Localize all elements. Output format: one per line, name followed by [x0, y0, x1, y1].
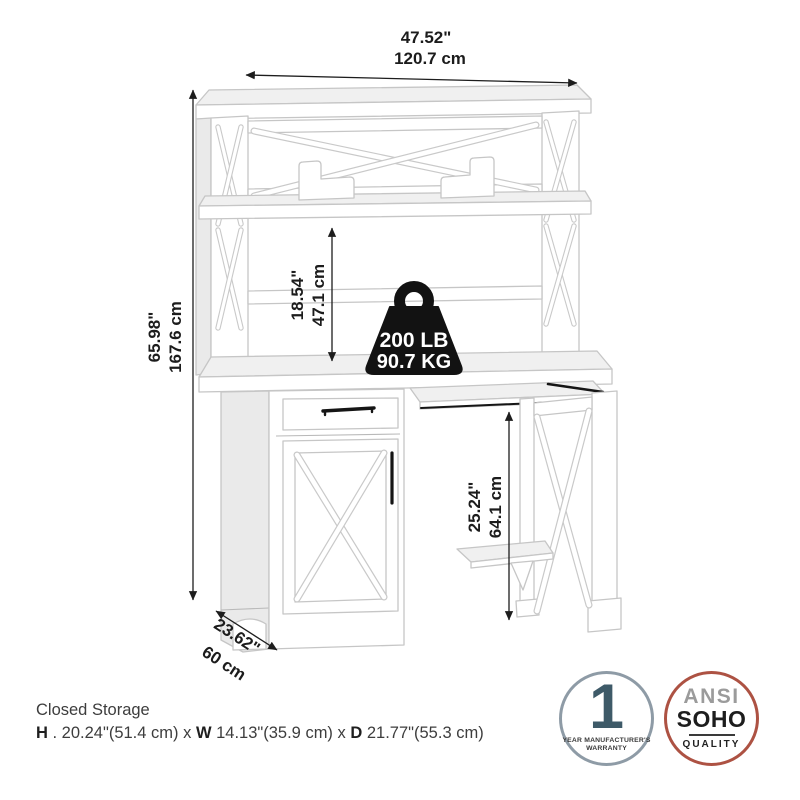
spec-h-label: H	[36, 724, 48, 742]
quality-label: QUALITY	[683, 739, 741, 750]
closed-storage-title: Closed Storage	[36, 699, 484, 722]
hutch-opening-metric-label: 47.1 cm	[309, 264, 328, 326]
width-dimension-arrow	[246, 75, 577, 83]
desk-illustration	[199, 351, 621, 652]
width-metric-label: 120.7 cm	[394, 49, 466, 68]
weight-capacity-kilograms: 90.7 KG	[377, 351, 451, 373]
height-inches-label: 65.98"	[145, 312, 164, 363]
warranty-caption-line1: YEAR MANUFACTURER'S	[562, 737, 650, 745]
spec-h-value: . 20.24"(51.4 cm) x	[48, 724, 196, 742]
pedestal-drawer	[283, 398, 398, 430]
spec-w-value: 14.13"(35.9 cm) x	[212, 724, 351, 742]
spec-d-value: 21.77"(55.3 cm)	[362, 724, 483, 742]
closed-storage-note: Closed Storage H . 20.24"(51.4 cm) x W 1…	[36, 699, 484, 745]
shelf-organizer-left	[299, 161, 354, 200]
quality-divider	[689, 734, 735, 736]
quality-org-label: ANSI	[683, 687, 739, 707]
warranty-badge: 1 YEAR MANUFACTURER'S WARRANTY	[559, 671, 654, 766]
furniture-illustration: 200 LB 90.7 KG 47.52" 120.7 cm 65.98" 16…	[0, 0, 800, 800]
spec-d-label: D	[350, 724, 362, 742]
knee-space-inches-label: 25.24"	[465, 482, 484, 533]
weight-capacity-pounds: 200 LB	[380, 329, 449, 352]
quality-category-label: SOHO	[677, 707, 747, 731]
spec-w-label: W	[196, 724, 212, 742]
knee-space-metric-label: 64.1 cm	[486, 476, 505, 538]
quality-badge: ANSI SOHO QUALITY	[664, 671, 759, 766]
product-dimension-diagram: 200 LB 90.7 KG 47.52" 120.7 cm 65.98" 16…	[0, 0, 800, 800]
warranty-years-number: 1	[589, 677, 624, 737]
height-metric-label: 167.6 cm	[166, 301, 185, 373]
closed-storage-specs: H . 20.24"(51.4 cm) x W 14.13"(35.9 cm) …	[36, 722, 484, 745]
shelf-organizer-right	[441, 157, 494, 198]
warranty-caption-line2: WARRANTY	[586, 745, 627, 753]
hutch-opening-inches-label: 18.54"	[288, 270, 307, 321]
width-inches-label: 47.52"	[401, 28, 452, 47]
